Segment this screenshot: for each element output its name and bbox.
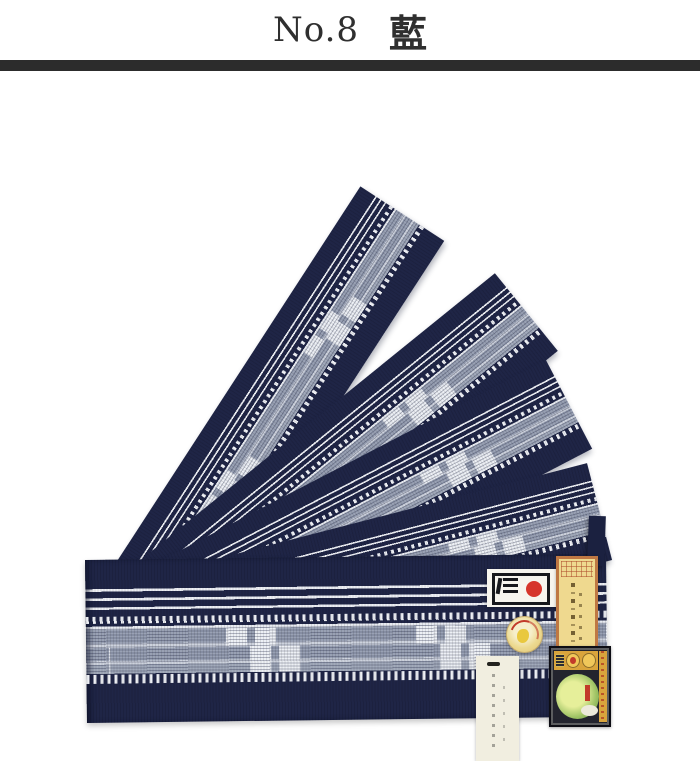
- gold-seal-sticker: [506, 616, 543, 653]
- header-divider-bar: [0, 60, 700, 71]
- label-header-grid: [561, 561, 593, 577]
- gold-side-strip: [599, 651, 607, 722]
- logo-bar-icon: [496, 578, 503, 594]
- logo-bar-icon: [503, 590, 518, 593]
- tag-text-marks: [503, 686, 505, 741]
- product-number: No.8: [273, 10, 359, 50]
- product-color-name: 藍: [389, 3, 427, 58]
- red-mark-icon: [585, 685, 590, 701]
- trademark-label: [549, 646, 611, 727]
- label-gold-header: [554, 651, 598, 670]
- mini-text-box: [556, 654, 564, 667]
- orange-paper-label: [556, 556, 598, 655]
- tag-slit: [487, 662, 500, 666]
- logo-bar-icon: [503, 578, 518, 581]
- product-photo: [0, 78, 700, 700]
- tag-text-marks: [492, 674, 495, 751]
- page-header: No.8 藍: [0, 0, 700, 60]
- logo-frame: [492, 573, 550, 605]
- logo-bar-icon: [503, 584, 518, 587]
- paper-hang-tag: [476, 656, 519, 761]
- red-sun-icon: [526, 581, 542, 597]
- red-dot-seal-icon: [566, 653, 580, 668]
- white-crescent: [581, 705, 598, 716]
- gold-seal-icon: [582, 653, 596, 668]
- green-globe-crest-icon: [556, 674, 599, 719]
- brand-logo-label: [487, 569, 561, 607]
- calligraphy-marks: [579, 593, 582, 642]
- calligraphy-marks: [571, 583, 575, 646]
